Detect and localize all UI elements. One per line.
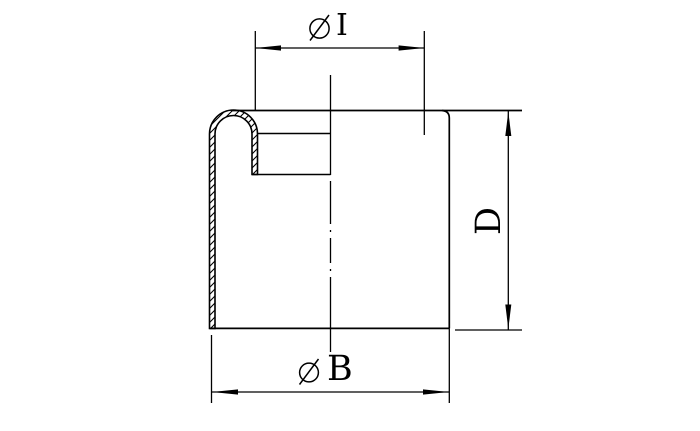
cap-inner-lines — [252, 134, 331, 175]
inner-diameter-letter: I — [336, 11, 348, 41]
diameter-icon — [307, 12, 332, 42]
height-letter: D — [472, 207, 507, 235]
arrowhead-left — [212, 389, 238, 394]
arrowhead-bottom — [505, 305, 511, 330]
arrowhead-top — [505, 112, 511, 137]
drawing-canvas: I B D — [0, 0, 700, 431]
outer-diameter-label: B — [297, 353, 353, 389]
diameter-icon — [297, 356, 321, 386]
arrowhead-right — [423, 389, 449, 394]
inner-diameter-label: I — [307, 10, 348, 44]
outer-diameter-letter: B — [327, 352, 353, 387]
arrowhead-left — [255, 45, 281, 50]
section-wall-hatched — [210, 110, 258, 328]
cap-right-wall — [442, 111, 449, 329]
height-label: D — [469, 201, 509, 241]
arrowhead-right — [399, 45, 425, 50]
dim-inner-diameter — [255, 31, 424, 135]
